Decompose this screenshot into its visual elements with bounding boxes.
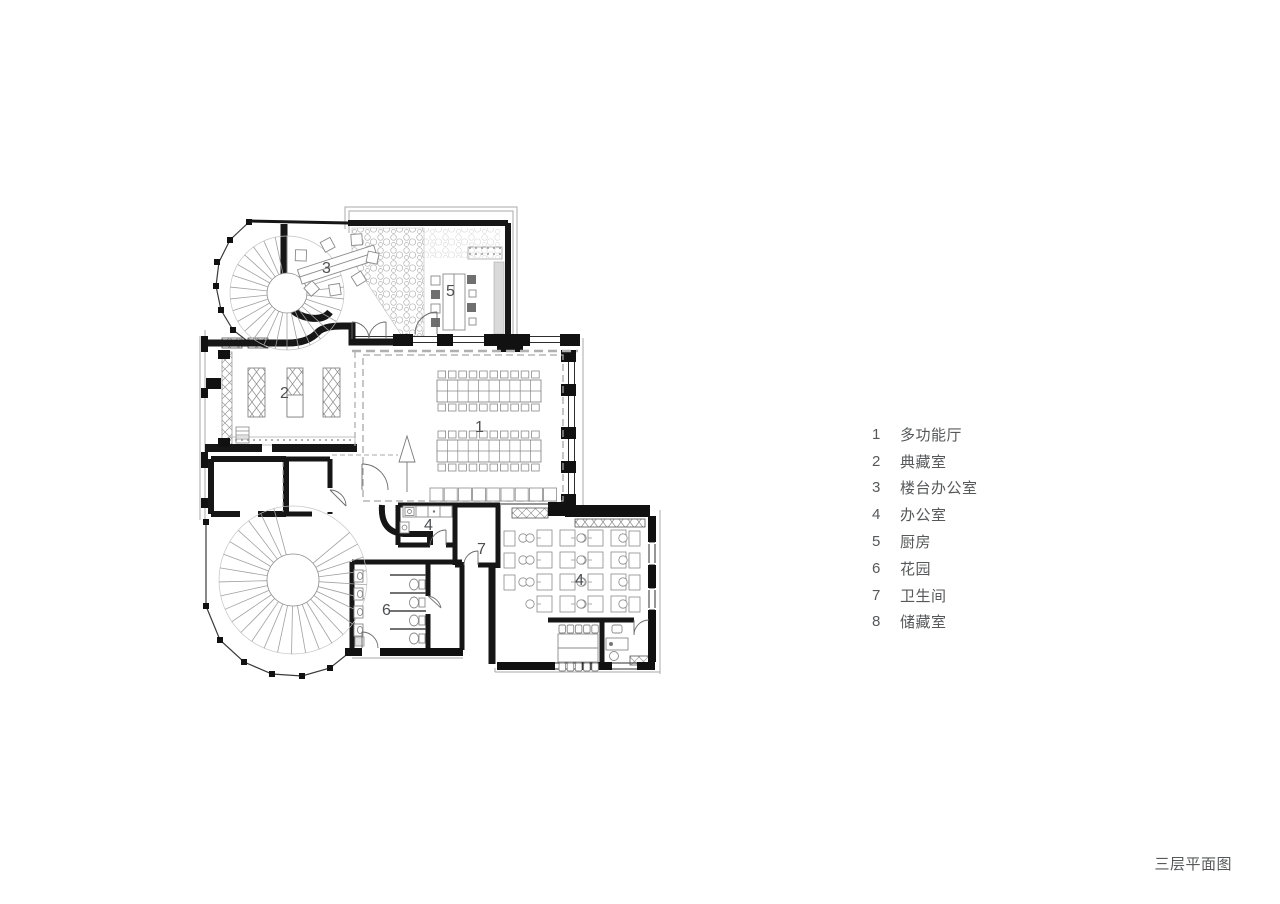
- legend-item: 5厨房: [872, 528, 978, 555]
- bench: [468, 247, 502, 259]
- legend-number: 7: [872, 587, 885, 604]
- legend-label: 多功能厅: [900, 424, 962, 445]
- upper-tower-outline: [216, 222, 268, 348]
- cabinets: [430, 488, 557, 501]
- legend-item: 8储藏室: [872, 609, 978, 636]
- room-label-hall: 1: [475, 419, 484, 436]
- legend-label: 典藏室: [900, 451, 947, 472]
- storage-room-walls: [211, 459, 286, 514]
- hall-seating: [437, 371, 541, 471]
- legend-label: 卫生间: [900, 585, 947, 606]
- meeting-table: [558, 625, 628, 671]
- legend-label: 办公室: [900, 504, 947, 525]
- legend-item: 4办公室: [872, 501, 978, 528]
- room-label-office: 4: [575, 572, 584, 589]
- room-label-bathroom: 7: [477, 541, 486, 558]
- legend-label: 厨房: [900, 531, 931, 552]
- room-label-garden: 6: [382, 602, 391, 619]
- room-label-pantry: 4: [424, 517, 433, 534]
- legend: 1多功能厅 2典藏室 3楼台办公室 4办公室 5厨房 6花园 7卫生间 8储藏室: [872, 421, 978, 635]
- room-label-collection: 2: [280, 385, 289, 402]
- office-desks: [504, 530, 640, 612]
- drawing-caption: 三层平面图: [1154, 853, 1232, 874]
- display-cases: [248, 368, 340, 417]
- legend-number: 1: [872, 426, 885, 443]
- legend-label: 储藏室: [900, 611, 947, 632]
- room-label-kitchen: 5: [446, 283, 455, 300]
- legend-number: 6: [872, 560, 885, 577]
- legend-label: 花园: [900, 558, 931, 579]
- textured-wall-band: [228, 437, 355, 445]
- floor-plan-drawing: 1 2 3 4 5 6 7 4: [0, 0, 1280, 904]
- legend-label: 楼台办公室: [900, 477, 978, 498]
- counter-strip: [494, 262, 504, 334]
- legend-number: 8: [872, 613, 885, 630]
- legend-item: 1多功能厅: [872, 421, 978, 448]
- window-band: [575, 519, 645, 527]
- legend-number: 4: [872, 506, 885, 523]
- room-label-terrace-office: 3: [322, 260, 331, 277]
- section-arrow: [399, 436, 415, 492]
- legend-item: 6花园: [872, 555, 978, 582]
- legend-item: 3楼台办公室: [872, 475, 978, 502]
- legend-item: 7卫生间: [872, 582, 978, 609]
- legend-item: 2典藏室: [872, 448, 978, 475]
- west-wall-hatch: [222, 352, 232, 445]
- legend-number: 2: [872, 453, 885, 470]
- legend-number: 5: [872, 533, 885, 550]
- floor-plan-page: 1 2 3 4 5 6 7 4 1多功能厅 2典藏室 3楼台办公室 4办公室 5…: [0, 0, 1280, 904]
- legend-number: 3: [872, 479, 885, 496]
